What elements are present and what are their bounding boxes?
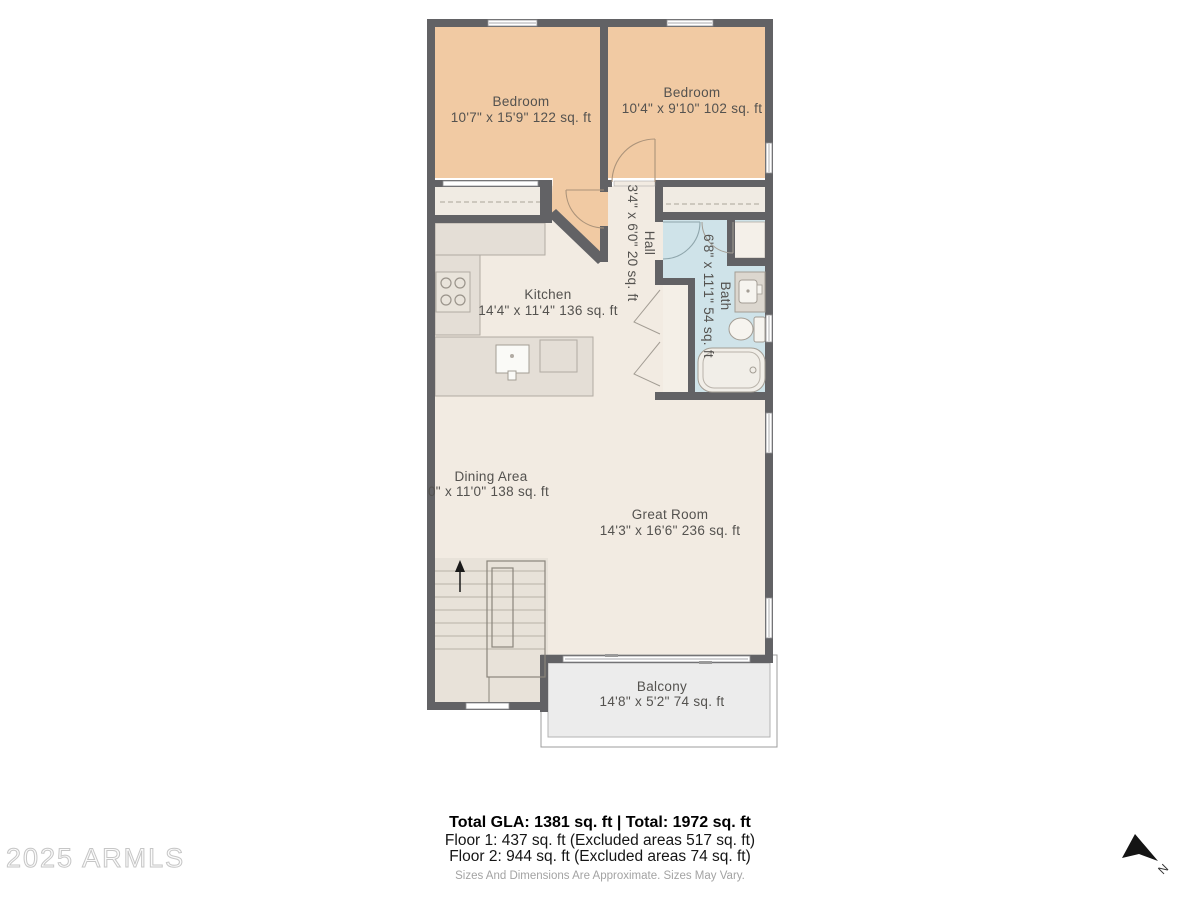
wall-hall-right-upper	[655, 186, 663, 222]
stove	[436, 272, 470, 312]
north-arrow-icon	[1122, 834, 1158, 861]
balcony-label: Balcony	[637, 679, 687, 694]
bedroom1-closet-floor	[435, 186, 550, 215]
wall-bath-bottom	[655, 392, 773, 400]
kitchen-label: Kitchen	[524, 287, 571, 302]
bath-label: Bath	[718, 282, 733, 311]
hall-dims: 3'4" x 6'0" 20 sq. ft	[625, 184, 640, 301]
floor-plan-drawing: Bedroom 10'7" x 15'9" 122 sq. ft Bedroom…	[0, 0, 1200, 900]
dining-dims: 0" x 11'0" 138 sq. ft	[428, 484, 549, 499]
slider-handle-2	[699, 661, 712, 664]
sink-faucet	[508, 371, 516, 380]
toilet-bowl	[729, 318, 753, 340]
bedroom2-label: Bedroom	[664, 85, 721, 100]
north-arrow: N	[1122, 834, 1171, 877]
balcony-dims: 14'8" x 5'2" 74 sq. ft	[600, 694, 725, 709]
wall-bath-top	[655, 212, 773, 220]
footer-floor2: Floor 2: 944 sq. ft (Excluded areas 74 s…	[449, 848, 751, 865]
sink-drain	[746, 289, 749, 292]
bedroom2-dims: 10'4" x 9'10" 102 sq. ft	[622, 101, 763, 116]
bath-closet-floor	[733, 222, 765, 258]
kitchen-island	[540, 340, 577, 372]
footer-disclaimer: Sizes And Dimensions Are Approximate. Si…	[455, 870, 745, 882]
vanity-faucet	[757, 285, 762, 294]
linen-closet-floor	[663, 285, 688, 392]
closet1-front-track	[443, 181, 538, 186]
wall-left	[427, 19, 435, 710]
hall-label: Hall	[642, 231, 657, 255]
bath-dims: 6'8" x 11'1" 54 sq. ft	[701, 234, 716, 358]
armls-watermark: 2025 ARMLS	[6, 843, 185, 873]
footer: Total GLA: 1381 sq. ft | Total: 1972 sq.…	[445, 814, 755, 882]
north-label: N	[1155, 861, 1171, 877]
wall-bedroom2-bottom-right	[655, 180, 773, 187]
great-room-label: Great Room	[632, 507, 709, 522]
kitchen-dims: 14'4" x 11'4" 136 sq. ft	[478, 303, 618, 318]
slider-handle-1	[605, 654, 618, 657]
bedroom2-closet-floor	[663, 188, 765, 212]
wall-bedroom-divider	[600, 19, 608, 186]
footer-total: Total GLA: 1381 sq. ft | Total: 1972 sq.…	[449, 814, 751, 831]
counter-top-band	[435, 223, 545, 255]
wall-bath-closet-bottom	[727, 258, 773, 266]
floor-plan-page: Bedroom 10'7" x 15'9" 122 sq. ft Bedroom…	[0, 0, 1200, 900]
window-stairs-bottom	[466, 703, 509, 709]
bedroom1-dims: 10'7" x 15'9" 122 sq. ft	[451, 110, 592, 125]
wall-bedroom2-bottom-left	[600, 180, 612, 187]
bedroom1-label: Bedroom	[493, 94, 550, 109]
footer-floor1: Floor 1: 437 sq. ft (Excluded areas 517 …	[445, 832, 755, 849]
great-room-dims: 14'3" x 16'6" 236 sq. ft	[600, 523, 741, 538]
wall-bedroom1-closet-bottom	[427, 215, 550, 223]
dining-label: Dining Area	[454, 469, 527, 484]
wall-hall-left-stub-bottom	[600, 226, 608, 262]
toilet-tank	[754, 317, 765, 342]
wall-linen-right	[688, 278, 695, 400]
